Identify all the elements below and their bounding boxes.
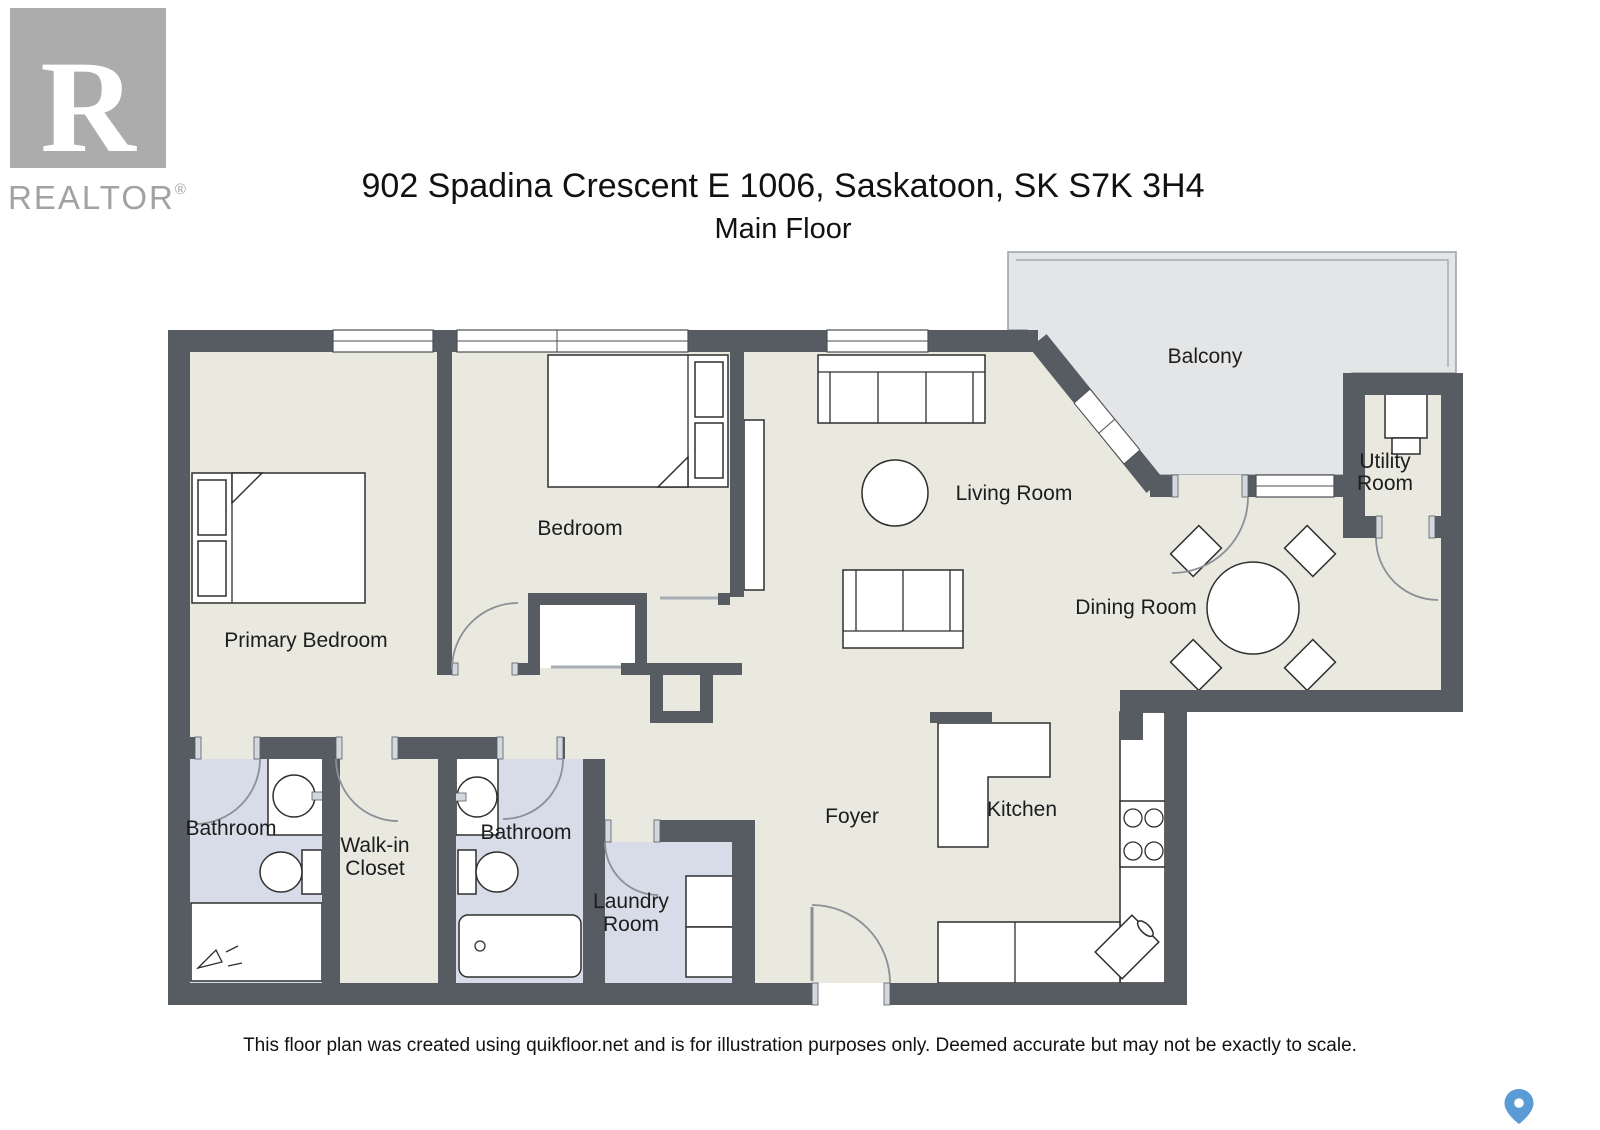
kitchen-counter-lower-icon — [938, 922, 1120, 983]
sofa-icon — [818, 355, 985, 423]
bedroom-closet-interior — [540, 605, 635, 668]
label-utility-line1: Utility — [1359, 450, 1411, 473]
shower-icon — [191, 903, 322, 981]
bathroom-right-toilet-icon — [458, 850, 518, 894]
page-title: 902 Spadina Crescent E 1006, Saskatoon, … — [362, 167, 1205, 205]
label-dining-room: Dining Room — [1075, 596, 1196, 619]
label-walkin-line1: Walk-in — [340, 834, 409, 857]
label-bedroom: Bedroom — [537, 517, 622, 540]
bedroom-wardrobe-icon — [744, 420, 764, 590]
laundry-washer-dryer-icon — [686, 876, 734, 977]
window-bedroom — [457, 330, 688, 352]
primary-bed-icon — [192, 473, 365, 603]
floor-plan-page: R REALTOR® 902 Spadina Crescent E 1006, … — [0, 0, 1600, 1130]
side-table-icon — [862, 460, 928, 526]
loveseat-icon — [843, 570, 963, 648]
window-dining — [1256, 475, 1334, 497]
realtor-logo-word: REALTOR® — [8, 179, 188, 216]
label-living-room: Living Room — [956, 482, 1073, 505]
realtor-logo: R REALTOR® — [8, 8, 188, 216]
label-bathroom-right: Bathroom — [480, 821, 571, 844]
label-bathroom-left: Bathroom — [185, 817, 276, 840]
stove-icon — [1120, 801, 1165, 867]
utility-washer-icon — [1385, 392, 1427, 454]
label-foyer: Foyer — [825, 805, 879, 828]
label-laundry-line1: Laundry — [593, 890, 669, 913]
realtor-logo-letter: R — [40, 33, 137, 180]
page-subtitle: Main Floor — [715, 213, 852, 245]
floor-plan-canvas: R REALTOR® 902 Spadina Crescent E 1006, … — [0, 0, 1600, 1130]
label-walkin-line2: Closet — [345, 857, 405, 880]
bedroom-bed-icon — [548, 355, 728, 487]
label-kitchen: Kitchen — [987, 798, 1057, 821]
bathtub-icon — [459, 915, 581, 977]
label-primary-bedroom: Primary Bedroom — [224, 629, 387, 652]
label-balcony: Balcony — [1168, 345, 1243, 368]
bathroom-left-toilet-icon — [260, 850, 322, 894]
map-pin-icon — [1505, 1089, 1534, 1124]
label-laundry-line2: Room — [603, 913, 659, 936]
bathroom-left-sink-icon — [268, 757, 330, 835]
label-utility-line2: Room — [1357, 472, 1413, 495]
disclaimer-text: This floor plan was created using quikfl… — [243, 1035, 1357, 1056]
window-living-room — [827, 330, 928, 352]
window-primary-bedroom — [333, 330, 433, 352]
